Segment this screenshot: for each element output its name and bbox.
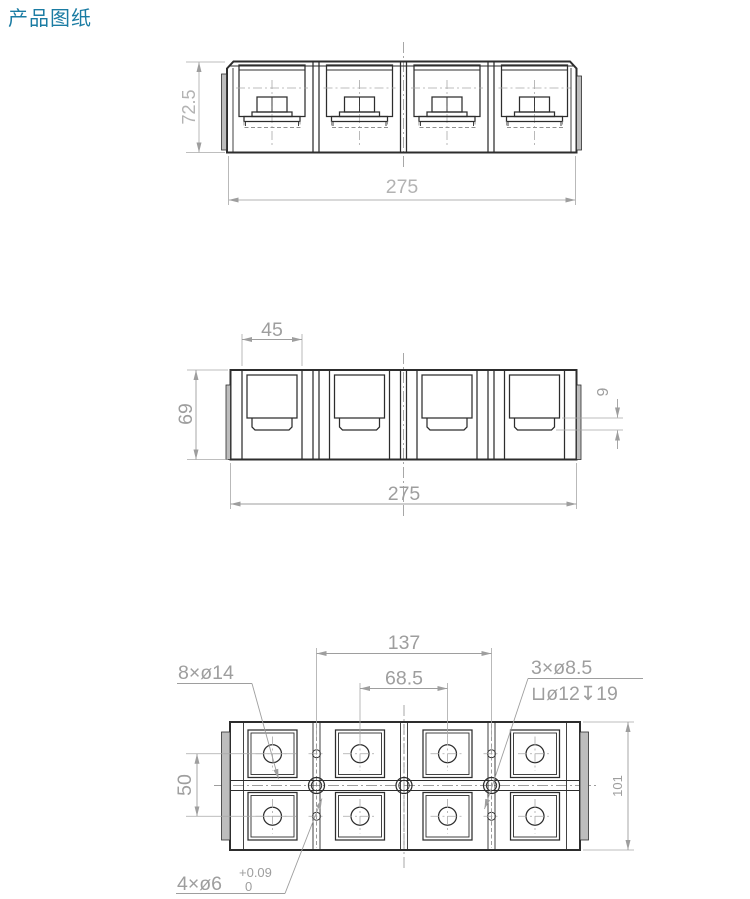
dim-middle-height: 69 xyxy=(175,370,228,460)
callout-cbore-spec-text: ⊔ø12↧19 xyxy=(531,683,618,705)
dim-depth-text: 101 xyxy=(610,775,625,797)
small-hole-tol-lower-text: 0 xyxy=(245,879,252,894)
dim-mount-span-text: 137 xyxy=(388,632,421,654)
dim-middle-width-text: 275 xyxy=(388,483,421,505)
dim-depth: 101 xyxy=(583,722,634,850)
dim-front-width: 275 xyxy=(229,156,576,205)
front-right-tab xyxy=(577,76,582,150)
middle-view: 45 69 9 275 xyxy=(175,319,623,518)
callout-small-holes: 4×ø6 +0.09 0 xyxy=(176,799,322,896)
dim-pocket-width: 45 xyxy=(242,319,302,366)
dim-pocket-width-text: 45 xyxy=(261,319,283,341)
product-drawing-page: 产品图纸 xyxy=(0,0,750,899)
callout-cbore-count-text: 3×ø8.5 xyxy=(531,657,592,679)
callout-small-holes-text: 4×ø6 xyxy=(177,873,222,895)
dim-front-height-text: 72.5 xyxy=(179,89,199,124)
technical-drawing-canvas: 72.5 275 xyxy=(0,0,750,899)
plan-left-tab xyxy=(222,732,231,840)
callout-large-holes-text: 8×ø14 xyxy=(178,662,234,684)
dim-row-spacing: 50 xyxy=(174,754,296,817)
small-hole-tol-upper-text: +0.09 xyxy=(239,865,272,880)
middle-left-tab xyxy=(226,385,231,460)
front-view: 72.5 275 xyxy=(179,42,582,205)
middle-right-tab xyxy=(577,385,582,460)
dim-middle-height-text: 69 xyxy=(175,403,197,425)
plan-view: 137 68.5 8×ø14 3×ø8.5 ⊔ø12↧19 xyxy=(174,632,643,895)
dim-front-height: 72.5 xyxy=(179,62,225,153)
dim-step-text: 9 xyxy=(595,387,612,396)
dim-front-width-text: 275 xyxy=(386,176,419,198)
dim-row-spacing-text: 50 xyxy=(174,774,196,796)
dim-inner-span-text: 68.5 xyxy=(385,668,423,690)
plan-right-tab xyxy=(580,732,589,840)
front-left-tab xyxy=(222,74,227,150)
dim-step: 9 xyxy=(556,387,623,449)
